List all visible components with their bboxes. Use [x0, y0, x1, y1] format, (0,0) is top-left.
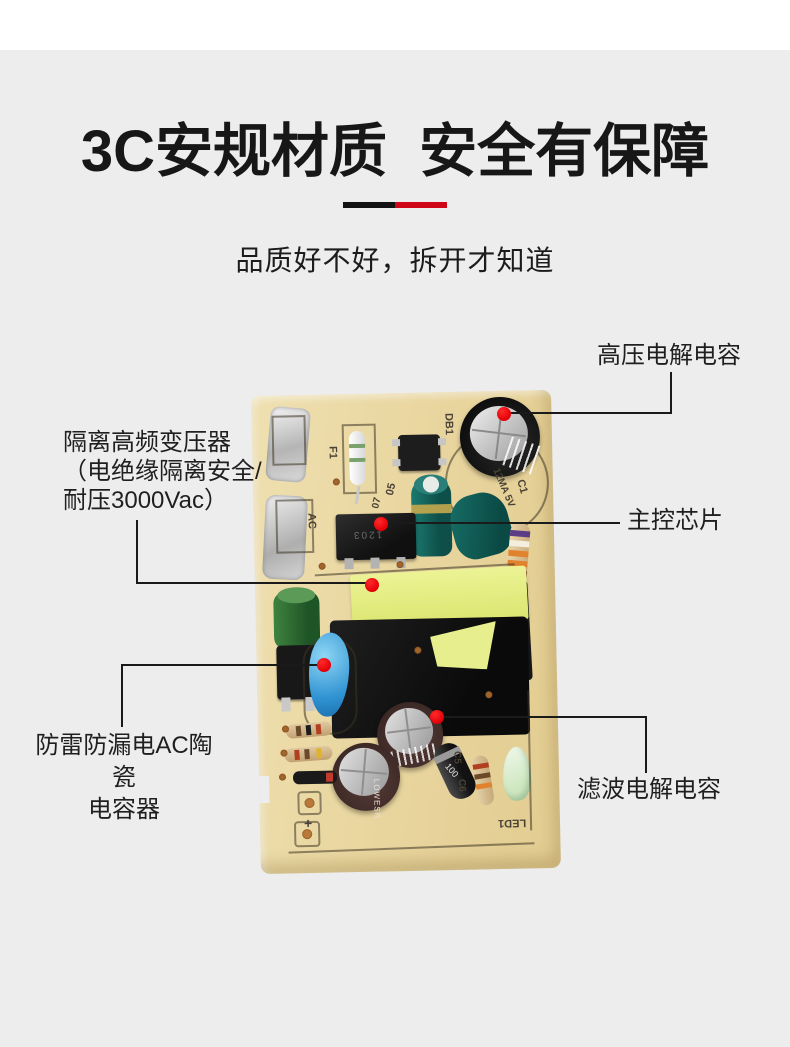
- filter-capacitor-c6: LOWESR: [331, 742, 400, 811]
- resistor-band: [349, 458, 365, 462]
- silkscreen-label-05: 05: [384, 482, 399, 497]
- silkscreen-label-f1: F1: [327, 446, 339, 459]
- page-subtitle: 品质好不好，拆开才知道: [0, 239, 790, 279]
- component-pin: [438, 438, 446, 445]
- resistor-band: [316, 748, 322, 758]
- silkscreen-label-ac: AC: [305, 513, 317, 529]
- callout-line-ceramic-vertical: [121, 664, 123, 727]
- teal-capacitor: [411, 478, 453, 557]
- callout-line-filter-horizontal: [440, 716, 647, 718]
- callout-line-filter-vertical: [645, 716, 647, 773]
- silkscreen-label-07: 07: [370, 496, 383, 509]
- resistor-band: [473, 762, 490, 769]
- transformer-label-line2: （电绝缘隔离安全/: [63, 457, 273, 486]
- solder-pad: [333, 478, 340, 485]
- divider-black-segment: [343, 202, 395, 208]
- callout-line-ceramic-horizontal: [121, 664, 323, 666]
- callout-label-filter-cap: 滤波电解电容: [577, 775, 721, 804]
- solder-pad: [414, 647, 421, 654]
- resistor-band: [509, 540, 529, 548]
- transformer-label-line1: 隔离高频变压器: [63, 428, 273, 457]
- resistor-band: [316, 724, 322, 734]
- capacitor-top: [414, 474, 448, 495]
- callout-line-chip-horizontal: [384, 522, 620, 524]
- callout-line-hv-horizontal: [506, 412, 672, 414]
- marker-dot-filter-cap: [430, 710, 444, 724]
- resistor-band: [349, 444, 365, 448]
- silkscreen-line: [289, 842, 535, 853]
- bridge-rectifier: [398, 434, 441, 471]
- callout-label-transformer: 隔离高频变压器 （电绝缘隔离安全/ 耐压3000Vac）: [63, 428, 273, 515]
- led: [502, 746, 531, 801]
- component-pin: [438, 458, 446, 465]
- marker-dot-transformer: [365, 578, 379, 592]
- silkscreen-label-c5: C5: [451, 751, 462, 764]
- ceramic-label-line1: 防雷防漏电AC陶瓷: [25, 730, 223, 794]
- callout-line-transformer-horizontal: [136, 582, 370, 584]
- resistor-band: [474, 772, 491, 779]
- marker-dot-ceramic-cap: [317, 658, 331, 672]
- pad-hole: [304, 798, 314, 808]
- silkscreen-box: [271, 415, 306, 466]
- solder-pad: [279, 774, 286, 781]
- small-resistor: [284, 745, 333, 762]
- callout-label-ceramic-cap: 防雷防漏电AC陶瓷 电容器: [25, 730, 223, 826]
- callout-line-transformer-vertical: [136, 520, 138, 584]
- silkscreen-label-db1: DB1: [442, 413, 454, 435]
- solder-pad: [319, 563, 326, 570]
- capacitor-top: [277, 587, 315, 604]
- callout-line-hv-vertical: [670, 372, 672, 414]
- component-pin: [392, 439, 400, 446]
- pcb-board: F1 DB1 C1 12MA 5V 05 07: [251, 390, 561, 874]
- diode: 100: [430, 739, 480, 803]
- marker-dot-main-chip: [374, 517, 388, 531]
- silkscreen-pad: [297, 791, 321, 815]
- title-divider: [343, 202, 447, 208]
- callout-label-main-chip: 主控芯片: [627, 506, 723, 535]
- silkscreen-line: [527, 690, 532, 830]
- resistor-band: [296, 726, 302, 736]
- component-pin: [281, 697, 290, 711]
- resistor-band: [304, 749, 310, 759]
- resistor-band: [510, 530, 530, 538]
- component-pin: [370, 558, 379, 569]
- solder-pad: [485, 691, 492, 698]
- component-pin: [392, 459, 400, 466]
- solder-pad: [282, 725, 289, 732]
- silkscreen-pad: [294, 821, 321, 848]
- small-resistor: [471, 754, 495, 806]
- small-resistor: [285, 721, 332, 739]
- resistor-band: [306, 725, 312, 735]
- resistor-band: [476, 782, 493, 789]
- divider-red-segment: [395, 202, 447, 208]
- transformer-label-line3: 耐压3000Vac）: [63, 486, 273, 515]
- marker-dot-hv-cap: [497, 407, 511, 421]
- small-diode: [293, 770, 337, 784]
- capacitor-band: [411, 504, 451, 514]
- capacitor-print-text: LOWESR: [372, 779, 382, 820]
- diode-band: [326, 773, 333, 782]
- component-pin: [344, 558, 353, 569]
- ceramic-label-line2: 电容器: [25, 794, 223, 826]
- callout-label-hv-cap: 高压电解电容: [597, 341, 741, 370]
- page-title: 3C安规材质 安全有保障: [0, 104, 790, 188]
- pad-hole: [302, 829, 312, 839]
- resistor-band: [508, 550, 528, 558]
- silkscreen-label-led1: LED1: [498, 817, 526, 830]
- resistor-band: [294, 750, 300, 760]
- green-capacitor: [273, 591, 320, 650]
- silkscreen-label-c6: C6: [456, 779, 467, 792]
- pcb-photo: F1 DB1 C1 12MA 5V 05 07: [251, 390, 561, 874]
